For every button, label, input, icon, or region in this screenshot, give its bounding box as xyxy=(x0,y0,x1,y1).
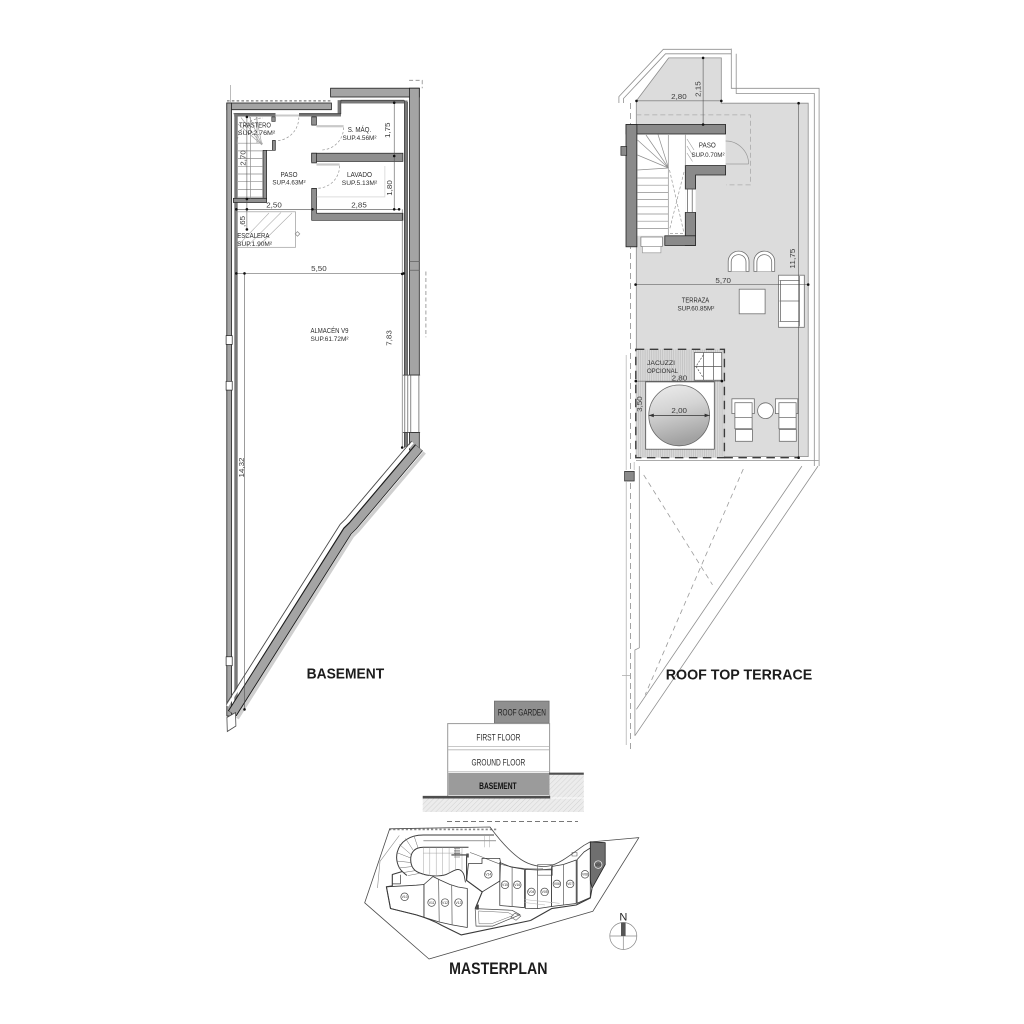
svg-text:N: N xyxy=(619,911,627,923)
svg-text:PASO: PASO xyxy=(699,140,716,149)
svg-text:3,50: 3,50 xyxy=(635,396,644,412)
svg-text:ROOF TOP TERRACE: ROOF TOP TERRACE xyxy=(666,666,813,683)
svg-text:SUP.2.76M²: SUP.2.76M² xyxy=(238,130,276,137)
svg-text:V12: V12 xyxy=(442,901,448,905)
svg-text:SUP.0.70M²: SUP.0.70M² xyxy=(691,152,724,159)
svg-text:2,80: 2,80 xyxy=(671,92,687,101)
svg-text:2,50: 2,50 xyxy=(266,201,282,210)
svg-text:ALMACÉN V9: ALMACÉN V9 xyxy=(310,326,348,335)
svg-text:1,75: 1,75 xyxy=(383,123,392,139)
svg-text:TRASTERO: TRASTERO xyxy=(239,120,271,129)
svg-text:5,70: 5,70 xyxy=(715,276,731,285)
svg-text:1,80: 1,80 xyxy=(385,180,394,196)
svg-text:MASTERPLAN: MASTERPLAN xyxy=(449,959,547,978)
svg-text:2,00: 2,00 xyxy=(671,406,687,415)
svg-text:7,83: 7,83 xyxy=(385,330,394,346)
svg-text:V06: V06 xyxy=(554,882,560,886)
svg-text:SUP.1.90M²: SUP.1.90M² xyxy=(237,241,272,248)
svg-text:SUP.5.13M²: SUP.5.13M² xyxy=(342,180,377,187)
svg-text:SUP.4.56M²: SUP.4.56M² xyxy=(343,135,377,142)
svg-text:V05: V05 xyxy=(542,890,548,894)
svg-text:TERRAZA: TERRAZA xyxy=(682,296,710,305)
svg-text:2,70: 2,70 xyxy=(239,150,248,166)
svg-text:14,32: 14,32 xyxy=(237,458,246,478)
svg-text:ESCALERA: ESCALERA xyxy=(237,231,269,240)
svg-text:SUP.60.85M²: SUP.60.85M² xyxy=(678,306,715,313)
svg-text:11,75: 11,75 xyxy=(788,249,797,269)
svg-text:V11: V11 xyxy=(429,901,435,905)
svg-text:V14: V14 xyxy=(485,873,491,877)
svg-text:FIRST FLOOR: FIRST FLOOR xyxy=(476,733,520,744)
svg-text:GROUND FLOOR: GROUND FLOOR xyxy=(472,757,526,768)
svg-text:V09: V09 xyxy=(595,863,601,867)
svg-text:V16: V16 xyxy=(514,883,520,887)
svg-text:SUP.4.63M²: SUP.4.63M² xyxy=(272,180,305,187)
svg-text:JACUZZI: JACUZZI xyxy=(647,360,675,367)
svg-text:V08: V08 xyxy=(582,873,588,877)
svg-text:2,15: 2,15 xyxy=(694,81,703,97)
svg-text:PASO: PASO xyxy=(281,170,298,179)
svg-text:V04: V04 xyxy=(528,890,534,894)
svg-text:LAVADO: LAVADO xyxy=(347,170,372,179)
svg-text:SUP.61.72M²: SUP.61.72M² xyxy=(311,336,349,343)
svg-text:V10: V10 xyxy=(402,895,408,899)
svg-text:BASEMENT: BASEMENT xyxy=(479,781,517,792)
svg-text:2,80: 2,80 xyxy=(672,374,688,383)
svg-text:S. MÁQ.: S. MÁQ. xyxy=(348,125,372,134)
svg-text:BASEMENT: BASEMENT xyxy=(307,665,385,682)
svg-text:ROOF GARDEN: ROOF GARDEN xyxy=(498,707,546,717)
svg-text:V15: V15 xyxy=(502,883,508,887)
svg-text:2,85: 2,85 xyxy=(351,200,367,209)
svg-text:,65: ,65 xyxy=(238,216,247,227)
svg-text:V07: V07 xyxy=(567,882,573,886)
svg-text:5,50: 5,50 xyxy=(311,264,327,273)
svg-text:V13: V13 xyxy=(455,901,461,905)
